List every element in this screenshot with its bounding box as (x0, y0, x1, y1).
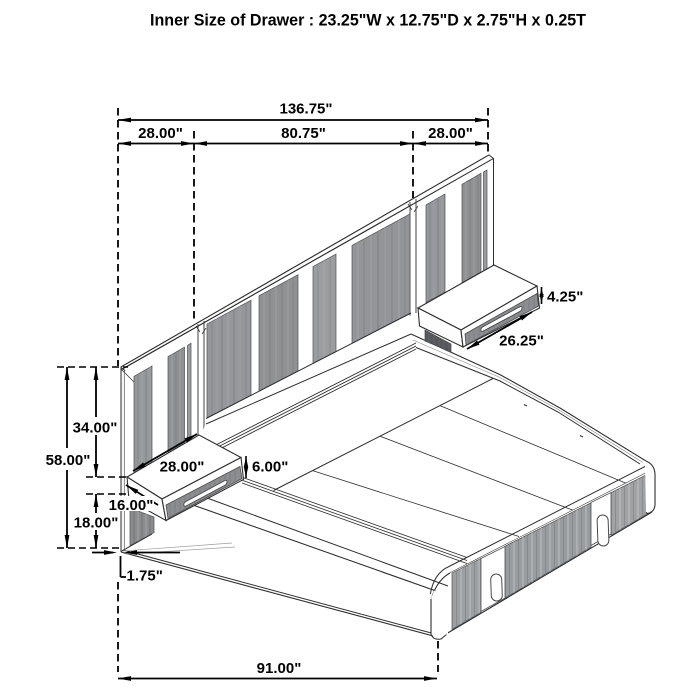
svg-text:26.25": 26.25" (499, 333, 544, 350)
svg-text:Inner Size of Drawer : 23.25"W: Inner Size of Drawer : 23.25"W x 12.75"D… (150, 11, 587, 30)
svg-text:80.75": 80.75" (281, 125, 326, 142)
svg-text:28.00": 28.00" (160, 459, 205, 476)
svg-text:16.00": 16.00" (109, 497, 154, 514)
svg-text:6.00": 6.00" (252, 459, 288, 476)
svg-text:18.00": 18.00" (74, 514, 119, 531)
svg-text:4.25": 4.25" (547, 289, 583, 306)
svg-text:58.00": 58.00" (46, 452, 91, 469)
svg-text:28.00": 28.00" (428, 125, 473, 142)
svg-text:136.75": 136.75" (280, 101, 333, 118)
svg-text:28.00": 28.00" (138, 125, 183, 142)
svg-text:1.75": 1.75" (127, 568, 163, 585)
svg-text:34.00": 34.00" (73, 419, 118, 436)
svg-text:91.00": 91.00" (257, 660, 302, 677)
